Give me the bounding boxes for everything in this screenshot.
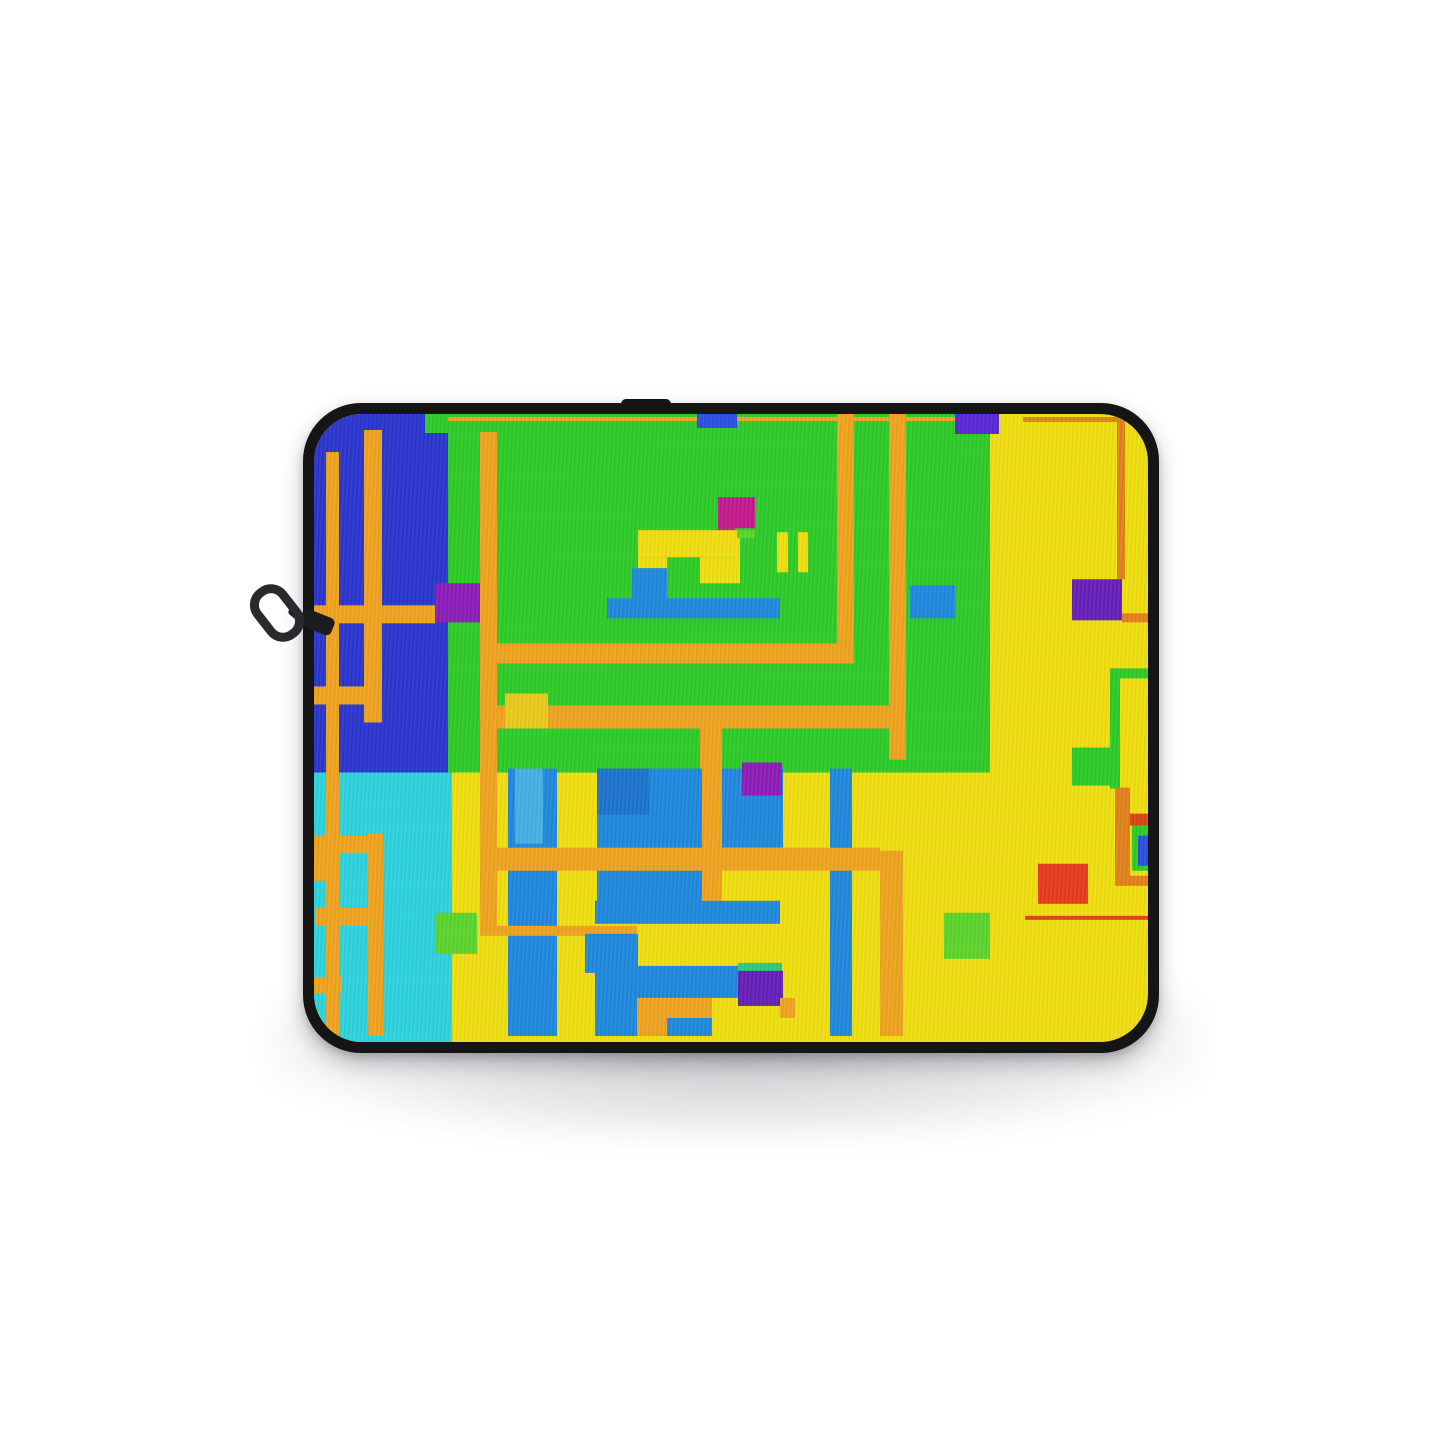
shape-orange-stripe-b xyxy=(364,430,382,722)
laptop-sleeve xyxy=(303,403,1159,1053)
shape-blue-square-top xyxy=(697,414,737,428)
shape-window-rung-bottom xyxy=(315,908,383,926)
zipper-slider-bump xyxy=(621,399,671,411)
shape-motif-yellow-right xyxy=(700,557,740,583)
shape-blue-L-top xyxy=(595,966,738,998)
sleeve-front-panel xyxy=(314,414,1148,1042)
shape-motif-green-smudge xyxy=(737,530,755,538)
shape-motif-yellow-bar xyxy=(638,530,740,557)
shape-motif-blue-foot xyxy=(632,568,667,600)
shape-purple-square-top xyxy=(955,414,999,434)
shape-green-square-right xyxy=(1072,748,1117,786)
shape-green-frame-h xyxy=(1110,668,1148,678)
shape-yellow-bar-1 xyxy=(777,532,788,572)
shape-window-side xyxy=(368,834,383,1036)
shape-purple-square-bottom xyxy=(738,971,783,1006)
shape-blue-col-4 xyxy=(830,769,852,1036)
shape-blue-panel xyxy=(1138,836,1148,866)
shape-blue-L-left xyxy=(595,998,637,1036)
shape-orange-frame-h xyxy=(1117,876,1148,886)
shape-orange-stripe-d xyxy=(837,414,854,643)
shape-orange-piece xyxy=(780,998,795,1018)
shape-orange-band-mid-1 xyxy=(480,643,854,663)
shape-purple-square-cols xyxy=(742,763,782,796)
shape-blue-square-green xyxy=(910,585,955,618)
zipper-ring xyxy=(248,583,305,644)
shape-magenta-square xyxy=(718,497,755,528)
shape-green-square-light xyxy=(944,913,990,959)
shape-orange-hseg-right xyxy=(1122,613,1148,622)
shape-motif-blue-base xyxy=(607,598,780,618)
shape-orange-seg-bottom-left xyxy=(314,977,342,993)
sleeve-artwork xyxy=(314,414,1148,1042)
shape-purple-square-right xyxy=(1072,579,1122,620)
shape-orange-stripe-a2 xyxy=(326,773,339,1036)
shape-blue-col-1-light xyxy=(515,769,543,844)
shape-blue-col-2-dark xyxy=(597,769,649,815)
shape-green-square-cyan xyxy=(435,913,477,954)
shape-orange-inner-2 xyxy=(637,1018,667,1036)
shape-orangered-bar xyxy=(1130,814,1148,826)
shape-yellow-square-mid xyxy=(505,693,548,728)
photo-background xyxy=(0,0,1445,1445)
shape-red-line xyxy=(1025,916,1148,920)
shape-blue-L-bottom xyxy=(667,1018,712,1036)
shape-orange-band-low-1 xyxy=(480,848,880,871)
shape-orange-stripe-g xyxy=(880,851,903,1036)
shape-red-square xyxy=(1038,864,1088,904)
shape-yellow-column-left xyxy=(452,773,473,1042)
shape-window-block xyxy=(314,836,330,881)
shape-orange-top-line-right xyxy=(1023,417,1117,422)
shape-left-blue-top-green-notch xyxy=(425,414,448,433)
shape-orange-frame-v xyxy=(1115,788,1130,886)
zipper-pull xyxy=(248,581,338,671)
shape-orange-vline-right xyxy=(1117,417,1125,579)
shape-purple-square-left xyxy=(435,583,485,622)
shape-blue-rect-wide xyxy=(595,901,780,924)
shape-orange-band-left-lower xyxy=(314,686,364,704)
shape-motif-yellow-left xyxy=(638,557,667,568)
shape-orange-band-mid-2 xyxy=(497,705,905,728)
shape-orange-stripe-f xyxy=(700,729,722,901)
shape-yellow-bar-2 xyxy=(798,532,808,572)
shape-orange-inner-1 xyxy=(637,998,712,1018)
